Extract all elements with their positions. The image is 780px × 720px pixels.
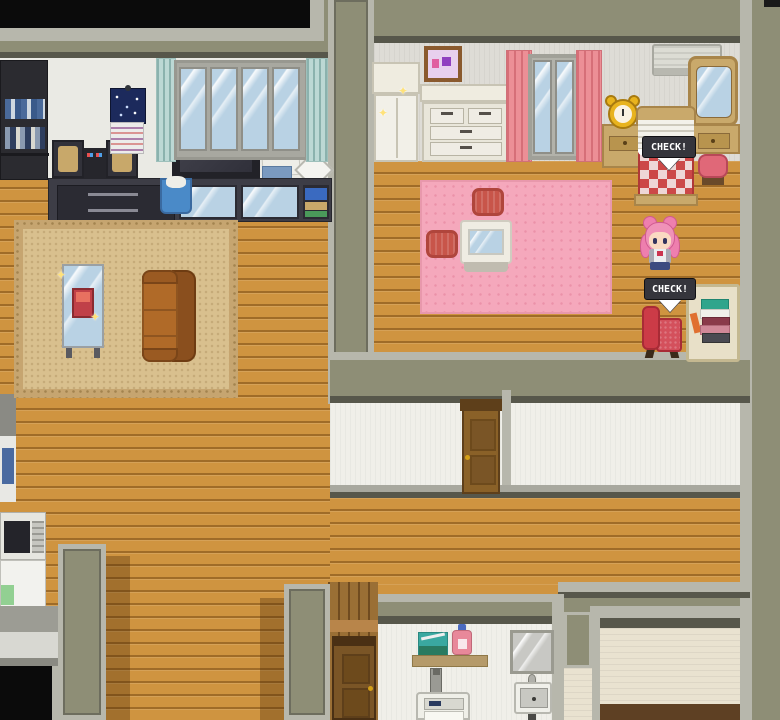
game-viewport: ✦ ✦ ✦ ✦ (0, 0, 780, 720)
bath-mirror (510, 630, 554, 674)
vanity-stool[interactable] (698, 154, 728, 186)
sink-drain (532, 697, 536, 701)
book-row (5, 99, 45, 119)
dresser-drawer (468, 108, 502, 124)
check-prompt-arrow (659, 300, 681, 312)
low-glass-table (460, 220, 512, 274)
sofa-arm-bottom (142, 348, 178, 362)
washing-machine (416, 692, 470, 720)
cabinet-glass-door (241, 185, 299, 219)
lower-door[interactable] (332, 644, 376, 720)
item-top (76, 292, 90, 302)
washer-panel (424, 698, 464, 710)
dark-doorway[interactable] (0, 666, 52, 720)
bedroom-window (528, 54, 580, 160)
floor-cushion (426, 230, 458, 258)
table-glass-top (468, 229, 504, 255)
counter-gray (0, 606, 58, 632)
detergent-bottle (452, 624, 472, 655)
bedroom-dresser (420, 84, 510, 164)
window-pane (555, 60, 574, 154)
uniform-bow (657, 251, 663, 256)
storage-box (418, 632, 448, 655)
door-panel-bottom (342, 688, 370, 718)
wardrobe-door-line (396, 98, 398, 158)
microwave-window (4, 521, 30, 553)
trash-bin (160, 178, 192, 214)
floor-cushion (472, 188, 504, 216)
vanity-drawer (698, 133, 730, 149)
green-book (305, 211, 327, 217)
trash-contents (166, 176, 186, 188)
side-cream-wall (564, 668, 592, 720)
sparkle-icon: ✦ (378, 106, 388, 120)
drawer-knob (623, 141, 627, 145)
hallway-floor (330, 498, 740, 586)
check-prompt-arrow (658, 158, 680, 170)
speaker-front (58, 146, 78, 172)
counter-line (0, 658, 58, 666)
stereo-speaker-left (52, 140, 84, 178)
cabinet-drawers (57, 185, 175, 221)
clock-body (608, 99, 638, 129)
fridge-magnet (1, 585, 14, 605)
shelf-line (1, 153, 49, 156)
side-olive-block (564, 612, 592, 668)
dresser-drawer (430, 142, 502, 156)
frame-art-pink (432, 59, 439, 68)
vending-machine-top (0, 394, 16, 436)
book-row (5, 127, 45, 149)
table-base (464, 262, 508, 272)
clock-hand (622, 109, 624, 116)
living-rug (14, 220, 238, 398)
bottom-right-room-floor (600, 704, 740, 720)
dresser-body (422, 102, 508, 162)
hallway-door[interactable] (462, 409, 500, 494)
drawer-handle (479, 112, 491, 115)
vending-machine (0, 436, 16, 502)
bedroom-wall-top-line (374, 36, 740, 43)
window-pane (210, 67, 238, 151)
check-prompt-label: CHECK! (652, 284, 688, 295)
dresser-drawer (430, 108, 464, 124)
drawer-handle (88, 193, 138, 196)
bottom-right-room-topline (600, 618, 740, 628)
door-knob (368, 686, 373, 691)
blue-box (305, 188, 327, 200)
microwave-panel (32, 521, 44, 553)
box-lower (419, 646, 447, 655)
hallway-wall (330, 403, 740, 487)
doorway-frame (52, 666, 60, 720)
character-skirt (650, 262, 670, 270)
window-pane (533, 60, 552, 154)
reading-chair[interactable] (640, 306, 684, 358)
glass-display-table: ✦ ✦ (62, 264, 104, 352)
door-panel-bottom (470, 455, 496, 485)
drawer-handle (460, 130, 472, 133)
check-prompt-chair[interactable]: CHECK! (644, 278, 696, 300)
wall-shelf (412, 655, 488, 667)
opening-border-bottom (0, 28, 324, 41)
pillar-left-shadow (106, 556, 130, 720)
wall-pillar-left (58, 544, 106, 720)
right-curtain-living (306, 58, 328, 162)
sparkle-icon: ✦ (398, 84, 408, 98)
book (702, 333, 730, 343)
bottom-right-room-wall (600, 628, 740, 706)
check-prompt-label: CHECK! (651, 142, 687, 153)
table-leg (66, 348, 72, 358)
living-window (174, 60, 308, 160)
wall-pillar-right (284, 584, 330, 720)
sparkle-icon: ✦ (56, 268, 66, 282)
table-leg (94, 348, 100, 358)
box-stripe (421, 633, 445, 641)
window-pane (272, 67, 300, 151)
washer-tap (430, 668, 442, 694)
wardrobe-body (374, 94, 418, 162)
bedroom-south-wall (330, 360, 750, 396)
drawer-handle (441, 112, 453, 115)
bottle-body (452, 630, 472, 655)
sink[interactable] (514, 682, 552, 714)
bottle-label (458, 639, 467, 649)
dark-bookshelf (0, 60, 48, 180)
cabinet-cubby (303, 185, 329, 219)
star-poster (110, 88, 146, 124)
pink-curtain-right (576, 50, 602, 162)
washer-display (429, 701, 441, 706)
door-panel-top (470, 419, 496, 451)
tan-box (305, 202, 327, 210)
sparkle-icon: ✦ (90, 310, 100, 324)
picture-frame (424, 46, 462, 82)
mirror-glass (696, 66, 732, 118)
vending-screen (2, 448, 14, 484)
pillar-right-shadow (260, 598, 284, 720)
tap-cap (433, 669, 440, 675)
window-pane (179, 67, 207, 151)
door-knob (465, 455, 470, 460)
hallway-wall-top-line (330, 396, 750, 403)
sink-pipe (528, 714, 536, 720)
stereo-lights (87, 153, 103, 157)
lower-door-ledge (328, 620, 378, 632)
player-character[interactable] (640, 216, 680, 270)
character-eye (663, 238, 667, 244)
top-right-dark-corner (764, 0, 780, 7)
sink-basin (520, 688, 548, 708)
center-vertical-wall (328, 0, 374, 404)
opening-border-right (310, 0, 324, 41)
dresser-drawer (430, 126, 502, 140)
stool-cushion (698, 154, 728, 178)
wall-calendar (110, 122, 144, 154)
lower-border-line (558, 592, 750, 598)
left-curtain-living (156, 58, 176, 162)
wardrobe: ✦ ✦ (372, 62, 420, 162)
leather-sofa (142, 270, 196, 362)
door-panel-top (342, 654, 370, 684)
drawer-knob (711, 139, 715, 143)
sofa-seat (142, 276, 178, 356)
wardrobe-top-box (372, 62, 420, 94)
poster-pin (125, 85, 131, 91)
drawer-handle (460, 146, 472, 149)
living-rug-inner (23, 229, 229, 389)
hallway-wall-divider (502, 390, 511, 498)
frame-art-purple (442, 57, 451, 66)
cabinet-white (0, 632, 58, 658)
refrigerator (0, 560, 46, 608)
bed-footboard (634, 194, 698, 206)
dresser-top (420, 84, 510, 102)
drawer-handle (88, 209, 138, 212)
character-eye (653, 238, 657, 244)
window-pane (241, 67, 269, 151)
washer-lid (424, 711, 464, 720)
clock-face (614, 105, 632, 123)
check-prompt-bed[interactable]: CHECK! (642, 136, 696, 158)
sofa-arm-top (142, 270, 178, 284)
top-black-opening (0, 0, 310, 28)
bathroom-topline (376, 616, 556, 624)
chair-back (642, 306, 660, 350)
microwave (0, 512, 46, 560)
stereo-center-unit (84, 148, 106, 178)
